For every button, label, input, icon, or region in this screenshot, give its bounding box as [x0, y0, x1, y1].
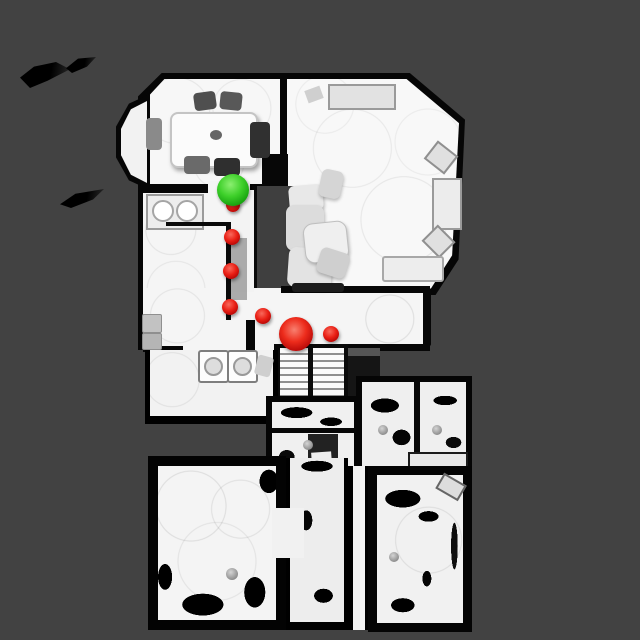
- island-counter-edge: [166, 222, 230, 226]
- chair: [219, 91, 243, 111]
- bottom-left-room: [148, 456, 286, 630]
- room-connector: [272, 508, 304, 558]
- scan-viewport[interactable]: [0, 0, 640, 640]
- wall-segment: [423, 288, 431, 346]
- washer: [198, 350, 229, 383]
- sofa-shadow: [292, 283, 344, 292]
- stair-flight-right: [313, 348, 344, 402]
- lower-hallway: [348, 466, 370, 630]
- table-centerpiece: [210, 130, 222, 140]
- mesh-debris-shard: [66, 57, 96, 73]
- dryer: [227, 350, 258, 383]
- hallway-floor: [143, 288, 430, 350]
- chair: [193, 91, 217, 112]
- mesh-debris-shard: [60, 189, 104, 208]
- media-console: [328, 84, 396, 110]
- sink-basin: [152, 200, 174, 222]
- doorway: [208, 181, 250, 201]
- sink-basin: [176, 200, 198, 222]
- chair: [250, 122, 270, 158]
- wall-segment: [246, 320, 255, 354]
- chair: [146, 118, 162, 150]
- counter-shadow: [231, 238, 247, 300]
- chair: [184, 156, 210, 174]
- cabinet: [432, 178, 462, 230]
- cabinet: [142, 333, 162, 350]
- wall-segment: [272, 428, 358, 433]
- bench: [382, 256, 444, 282]
- cabinet: [142, 314, 162, 333]
- stair-flight-left: [280, 348, 308, 402]
- mesh-debris-shard: [20, 62, 70, 88]
- chair: [214, 158, 240, 176]
